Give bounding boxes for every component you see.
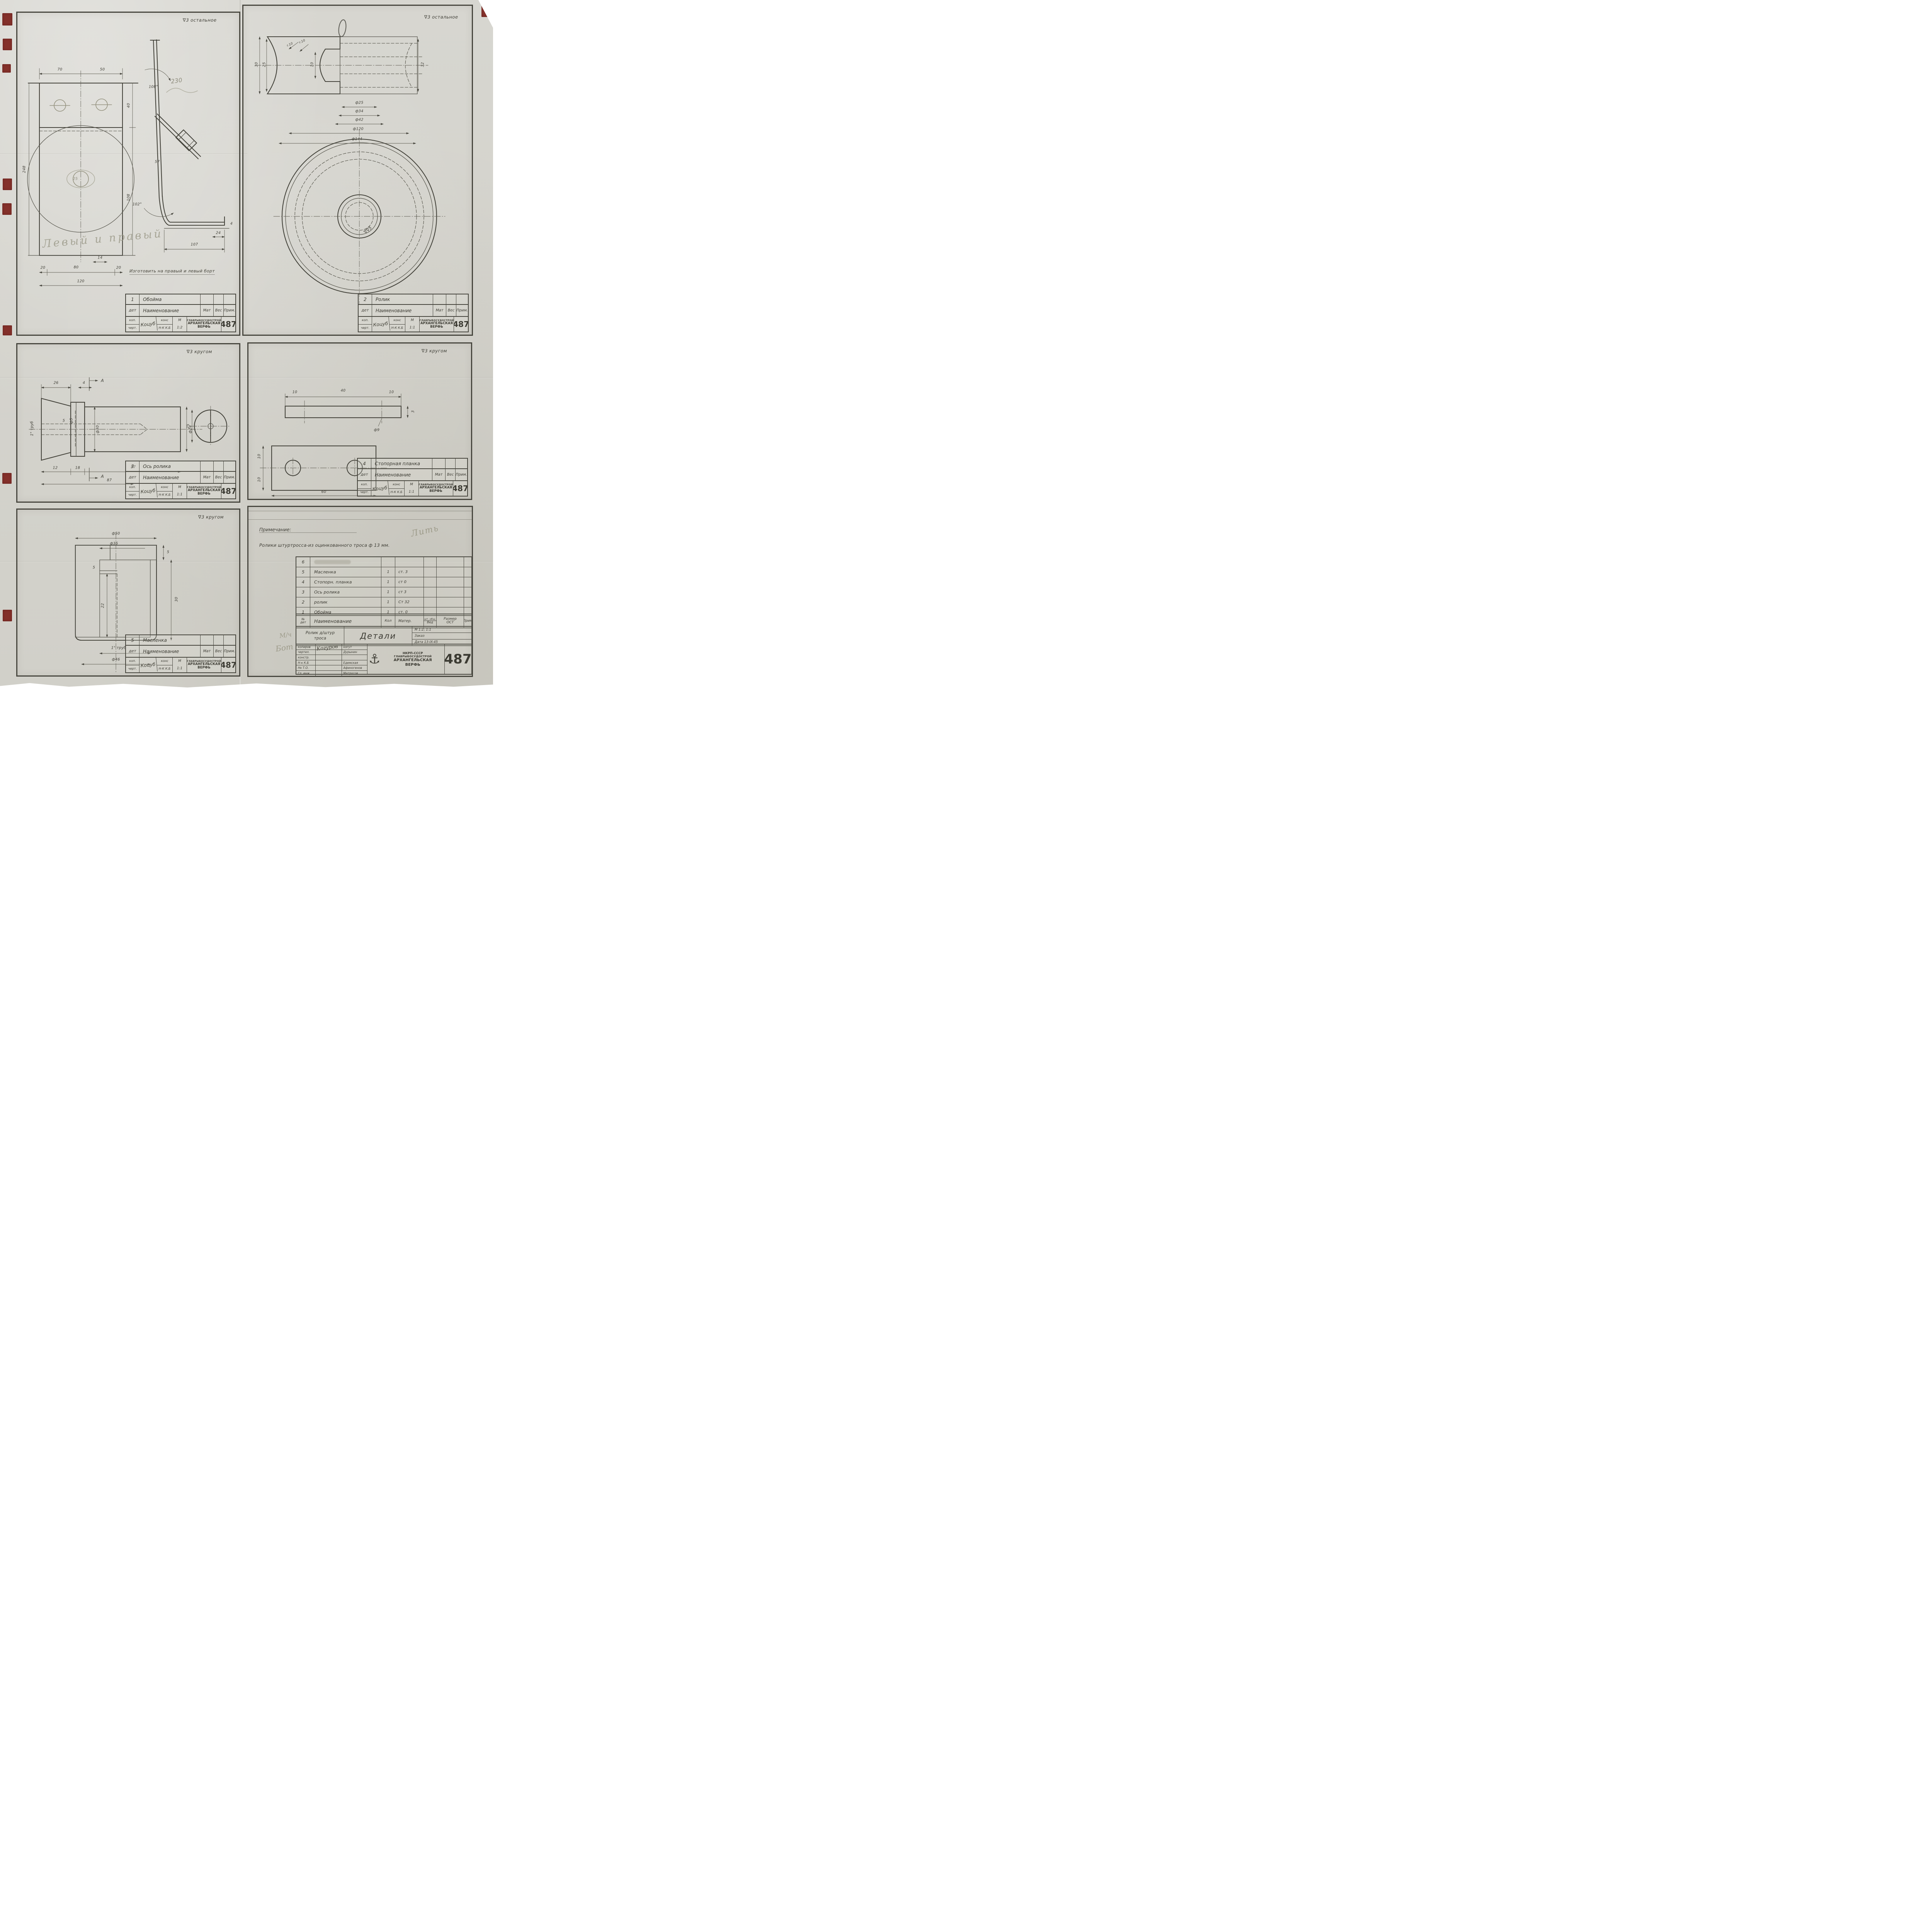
cell-empty — [224, 635, 235, 645]
row-qty: 1 — [381, 587, 395, 597]
yard-name-2: ВЕРФЬ — [197, 325, 210, 329]
header-name: Наименование — [310, 614, 381, 628]
obojma-front-view — [27, 68, 138, 286]
roles-cell: коп. черт. — [359, 317, 372, 332]
sign-role: Гл. инж. — [296, 671, 316, 676]
role-chert: черт. — [126, 665, 139, 673]
part-name: Стопорная планка — [371, 459, 432, 468]
cell-empty — [456, 294, 468, 304]
dim-label: 120 — [77, 279, 84, 284]
sign-signature — [316, 671, 342, 676]
red-tape-mark — [2, 13, 12, 26]
scale-cell: М 1:1 — [405, 317, 420, 332]
kons-cell: конс Н-К К.Б — [389, 481, 405, 496]
row-mat: Ст 32 — [395, 597, 424, 607]
row-qty — [381, 557, 395, 567]
kb: К.Б — [397, 491, 403, 494]
nk: Н-К — [391, 491, 396, 494]
dim-label: 248 — [22, 165, 27, 173]
sign-name: Матросов — [342, 671, 367, 676]
row-qty: 1 — [381, 567, 395, 577]
col-prim: Прим. — [456, 469, 467, 480]
col-det: дет — [126, 472, 139, 483]
roles-cell: коп. черт. — [126, 317, 139, 332]
row-name: Стопорн. планка — [310, 577, 381, 587]
scale-order-date: М 1:2; 1:1 Заказ Дата 13-IX-45 — [412, 627, 471, 645]
kb: К.Б — [165, 667, 171, 670]
col-mat: Мат — [201, 646, 214, 657]
col-mat: Мат — [201, 305, 214, 316]
row-mat: ст 3 — [395, 587, 424, 597]
kons: конс — [157, 317, 172, 325]
col-det: дет — [126, 646, 139, 657]
org-cell: ГЛАВРЫБОСУДОСТРОЙ АРХАНГЕЛЬСКАЯ ВЕРФЬ — [419, 481, 453, 496]
signature: Коцуб — [139, 483, 158, 499]
panel-obojma: ∇3 остальное 70 50 40 108 248 14 20 80 2… — [16, 12, 240, 336]
col-ves: Вес — [446, 469, 456, 480]
dim-label: 5 — [167, 550, 169, 554]
sign-name: Дурынин — [342, 650, 367, 655]
yard-name-2: ВЕРФЬ — [429, 490, 442, 493]
yard-name-2: ВЕРФЬ — [430, 325, 443, 329]
object-name-2: троса — [314, 636, 326, 641]
dim-label: 10 — [257, 477, 262, 482]
obojma-side-view — [144, 40, 229, 252]
header-size-2: ОСТ — [447, 621, 454, 624]
section-label: А — [101, 378, 104, 383]
org-text: НКРП-СССР ГЛАВРЫБОСУДОСТРОЙ АРХАНГЕЛЬСКА… — [381, 651, 444, 667]
dim-label: ф30 — [96, 425, 100, 433]
scale-m: М — [405, 481, 418, 488]
dim-label: 5 — [93, 566, 95, 570]
dim-label: 87 — [107, 478, 112, 483]
logo-org-cell: ⚓ НКРП-СССР ГЛАВРЫБОСУДОСТРОЙ АРХАНГЕЛЬС… — [367, 645, 445, 674]
scale-value: 1:1 — [173, 491, 187, 498]
row-ved — [424, 597, 437, 607]
cell-empty — [214, 461, 224, 471]
dim-label: ф120 — [353, 127, 363, 131]
parts-list-table: 6 5 Масленка 1 ст. 3 4 Стопорн. планка — [296, 556, 472, 616]
scale-value: 1:1 — [173, 665, 187, 672]
dim-label: 70 — [58, 68, 63, 72]
role-kop: коп. — [358, 481, 371, 489]
row-prim — [464, 587, 471, 597]
role-chert: черт. — [126, 325, 139, 332]
scale-m: М — [173, 484, 187, 491]
dim-label: 18 — [75, 466, 80, 470]
kons-cell: конс Н-К К.Б — [157, 317, 173, 332]
row-prim — [464, 597, 471, 607]
sign-signature — [316, 660, 342, 665]
dim-label: ф34 — [355, 109, 363, 114]
dim-label: 107 — [190, 243, 198, 247]
col-mat: Мат — [432, 469, 446, 480]
row-name: Масленка — [310, 567, 381, 577]
nk: Н-К — [159, 493, 165, 497]
dim-label: 3 — [411, 410, 415, 413]
torn-bottom-edge — [0, 682, 493, 689]
cell-empty — [224, 461, 235, 471]
nk-kb: Н-К К.Б — [157, 665, 172, 673]
dim-label: 20 — [116, 266, 121, 270]
header-no-2: дет — [300, 621, 306, 624]
sign-role: констр. — [296, 655, 316, 660]
sign-role: копиров — [296, 645, 316, 650]
part-name: Ролик — [372, 294, 433, 304]
signatures-block: копиров когут чертил. Дурынин констр. Н-… — [296, 644, 472, 675]
rule-line — [248, 519, 472, 520]
kons-cell: конс Н-К К.Б — [157, 484, 173, 498]
kons: конс — [389, 317, 405, 325]
col-ves: Вес — [214, 305, 224, 316]
surface-finish-note: ∇3 остальное — [183, 17, 217, 23]
dim-label: ф46 — [112, 658, 120, 662]
dim-label: 10 — [389, 390, 394, 395]
pencil-dim-label: 25 — [73, 177, 78, 181]
col-prim: Прим. — [224, 646, 235, 657]
dim-label: 40 — [127, 103, 131, 108]
panel-main-title-block: Примечание: Ролики штуртросса-из оцинков… — [247, 506, 473, 677]
title-block-4: 4 Стопорная планка дет Наименование Мат … — [357, 458, 468, 497]
scale-value: 1:1 — [405, 324, 419, 332]
role-kop: коп. — [126, 484, 139, 492]
dim-label: 25 — [262, 62, 267, 67]
role-chert: черт. — [126, 492, 139, 499]
roles-cell: коп. черт. — [126, 658, 139, 672]
title-block-3: 3 Ось ролика дет Наименование Мат Вес Пр… — [125, 461, 236, 499]
role-chert: черт. — [358, 489, 371, 496]
dim-label: ф42 — [355, 118, 363, 122]
parts-row: 4 Стопорн. планка 1 ст 0 — [296, 577, 471, 587]
title-block-5: 5 Масленка дет Наименование Мат Вес Прим… — [125, 634, 236, 673]
shipyard-logo-anchor-icon: ⚓ — [369, 651, 380, 667]
dim-label: 1" труб — [111, 646, 126, 650]
col-name: Наименование — [139, 472, 201, 483]
rule-line — [248, 511, 472, 511]
erased-entry — [314, 560, 351, 564]
kons: конс — [157, 658, 172, 665]
kb: К.Б — [165, 493, 171, 497]
row-ved — [424, 567, 437, 577]
col-prim: Прим. — [224, 305, 235, 316]
header-ved: шт. общ. Вед — [424, 614, 437, 628]
dim-label: 12 — [53, 466, 58, 470]
dim-label: ф9 — [374, 428, 380, 432]
panel-rolik: ∇3 остальное 30 25 r.10 r.10 10 32 ф25 ф… — [242, 5, 473, 336]
sheet-title: Детали — [344, 627, 412, 645]
dim-label: 14 — [98, 256, 103, 260]
part-number: 3 — [126, 461, 139, 471]
row-size — [437, 577, 464, 587]
cell-empty — [224, 294, 235, 304]
yard-name-1: АРХАНГЕЛЬСКАЯ — [381, 658, 444, 663]
cell-empty — [456, 459, 467, 468]
kb: К.Б — [398, 327, 403, 330]
header-no: № дет — [296, 614, 310, 628]
col-name: Наименование — [139, 305, 201, 316]
red-tape-mark — [3, 179, 12, 190]
col-ves: Вес — [446, 305, 456, 316]
red-tape-mark — [3, 325, 12, 335]
row-mat: ст 0 — [395, 577, 424, 587]
row-no: 3 — [296, 587, 310, 597]
drawing-number: 487 — [454, 317, 468, 332]
yard-name-2: ВЕРФЬ — [381, 663, 444, 667]
header-ved-label: Вед — [424, 621, 436, 624]
sign-role: чертил. — [296, 650, 316, 655]
cell-empty — [201, 461, 214, 471]
scale-m: М — [173, 658, 187, 665]
dim-label: 25 — [186, 424, 190, 429]
cell-empty — [446, 294, 456, 304]
parts-row: 5 Масленка 1 ст. 3 — [296, 567, 471, 577]
cell-empty — [446, 459, 456, 468]
row-prim — [464, 577, 471, 587]
dim-label: 80 — [74, 265, 79, 270]
sign-name — [342, 655, 367, 660]
col-name: Наименование — [372, 305, 433, 316]
row-qty: 1 — [381, 597, 395, 607]
kb: К.Б — [165, 327, 171, 330]
part-number: 5 — [126, 635, 139, 645]
cell-empty — [432, 459, 446, 468]
row-size — [437, 587, 464, 597]
cell-empty — [214, 635, 224, 645]
cell-empty — [201, 294, 214, 304]
dim-label: 4 — [83, 381, 85, 385]
scale-value: 1:2 — [173, 324, 187, 332]
col-name: Наименование — [371, 469, 432, 480]
org-cell: ГЛАВРЫБОСУДОСТРОЙ АРХАНГЕЛЬСКАЯ ВЕРФЬ — [187, 484, 221, 498]
nk: Н-К — [391, 327, 397, 330]
panel-os-rolika: ∇3 кругом 26 4 А А 1" труб 5 ф5 ф30 ф24 … — [16, 343, 240, 503]
roles-cell: коп. черт. — [358, 481, 371, 496]
col-det: дет — [126, 305, 139, 316]
dim-label: 10 — [257, 454, 262, 459]
kons: конс — [157, 484, 172, 492]
handwritten-pencil-margin: Бот — [275, 642, 294, 653]
surface-finish-note: ∇3 остальное — [424, 14, 458, 20]
org-cell: ГЛАВРЫБОСУДОСТРОЙ АРХАНГЕЛЬСКАЯ ВЕРФЬ — [420, 317, 454, 332]
col-name: Наименование — [139, 646, 201, 657]
col-det: дет — [358, 469, 371, 480]
row-ved — [424, 557, 437, 567]
panel-stopornaya-planka: ∇3 кругом 10 40 10 3 ф9 10 10 60 4 Стопо… — [247, 342, 472, 500]
part-name: Ось ролика — [139, 461, 201, 471]
red-tape-mark — [3, 39, 12, 50]
torn-corner — [478, 0, 493, 28]
dim-label: ф50 — [112, 532, 120, 536]
rolik-section-view — [255, 19, 428, 143]
sign-name: когут — [342, 645, 367, 650]
sign-signature — [316, 665, 342, 670]
scale-cell: М 1:1 — [173, 658, 187, 672]
handwritten-pencil-margin: М/ч — [279, 631, 292, 639]
section-label: А — [101, 474, 104, 479]
rolik-drawing — [243, 6, 472, 335]
row-name — [310, 557, 381, 567]
row-size — [437, 567, 464, 577]
dim-label: 5 — [63, 419, 65, 423]
part-name: Обойма — [139, 294, 201, 304]
dim-label: 4 — [230, 222, 233, 226]
dim-label: 30 — [255, 62, 259, 67]
sign-role: Нк Т.О. — [296, 665, 316, 670]
note-text: Ролики штуртросса-из оцинкованного троса… — [259, 543, 389, 548]
header-size: Размер ОСТ — [437, 614, 464, 628]
dim-label: ф25 — [355, 101, 363, 105]
sign-role: Н-к К.Б — [296, 660, 316, 665]
scale-m: М — [405, 317, 419, 324]
signature: Коцуб — [139, 316, 158, 332]
cell-empty — [433, 294, 446, 304]
dim-label: 108 — [127, 194, 131, 201]
nk-kb: Н-К К.Б — [157, 325, 172, 332]
part-number: 4 — [358, 459, 371, 468]
drawing-number-large: 487 — [444, 645, 471, 674]
plate-side-view — [285, 394, 408, 426]
nk-kb: Н-К К.Б — [157, 492, 172, 499]
object-name: Ролик д/штур троса — [296, 627, 344, 645]
cell-empty — [214, 294, 224, 304]
dim-label: 50 — [100, 68, 105, 72]
dim-label: 22 — [101, 603, 105, 608]
title-block-2: 2 Ролик дет Наименование Мат Вес Прим. к… — [358, 294, 469, 332]
scale-cell: М 1:1 — [405, 481, 419, 496]
org-cell: ГЛАВРЫБОСУДОСТРОЙ АРХАНГЕЛЬСКАЯ ВЕРФЬ — [187, 658, 221, 672]
red-tape-mark — [2, 203, 12, 215]
row-mat: ст. 3 — [395, 567, 424, 577]
row-name: Ось ролика — [310, 587, 381, 597]
header-prim: Прим — [464, 614, 471, 628]
org-name: ГЛАВРЫБОСУДОСТРОЙ — [381, 655, 444, 658]
header-qty: Кол — [381, 614, 395, 628]
scale-cell: М 1:1 — [173, 484, 187, 498]
row-prim — [464, 557, 471, 567]
drawing-number: 487 — [221, 484, 235, 498]
scale-m: М — [173, 317, 187, 324]
parts-row: 6 — [296, 557, 471, 567]
dim-label: 60 — [321, 490, 327, 494]
dim-label: 24 — [216, 231, 221, 235]
row-name: ролик — [310, 597, 381, 607]
dim-label: 32 — [421, 62, 425, 67]
surface-finish-note: ∇3 кругом — [422, 348, 447, 354]
signature: Коцуб — [371, 316, 390, 332]
part-name: Масленка — [139, 635, 201, 645]
dim-label: ф5 — [70, 418, 74, 424]
rolik-front-view — [274, 130, 445, 304]
dim-label: 102° — [133, 202, 142, 207]
role-kop: коп. — [126, 317, 139, 325]
red-tape-mark — [2, 473, 12, 484]
sign-name: Афиногенов — [342, 665, 367, 670]
drawing-number: 487 — [221, 317, 235, 332]
org-cell: ГЛАВРЫБОСУДОСТРОЙ АРХАНГЕЛЬСКАЯ ВЕРФЬ — [187, 317, 221, 332]
axle-section-view — [190, 406, 231, 446]
signatures-table: копиров когут чертил. Дурынин констр. Н-… — [296, 645, 367, 674]
object-name-1: Ролик д/штур — [306, 631, 335, 636]
agency-name: НКРП-СССР — [381, 651, 444, 655]
kons: конс — [389, 481, 404, 489]
dim-label: 30 — [175, 597, 179, 602]
sign-signature — [316, 655, 342, 660]
dim-label: 108° — [149, 85, 158, 89]
nk-kb: Н-К К.Б — [389, 489, 404, 496]
row-ved — [424, 577, 437, 587]
row-no: 6 — [296, 557, 310, 567]
title-block-1: 1 Обойма дет Наименование Мат Вес Прим. … — [125, 294, 236, 332]
part-number: 1 — [126, 294, 139, 304]
dim-label: 57 — [155, 160, 160, 164]
role-kop: коп. — [126, 658, 139, 665]
col-mat: Мат — [433, 305, 446, 316]
panel-maslenka: ∇3 кругом ф50 ф35 5 5 30 22 1" труб ф46 … — [16, 509, 240, 677]
row-mat — [395, 557, 424, 567]
col-ves: Вес — [214, 472, 224, 483]
col-mat: Мат — [201, 472, 214, 483]
part-number: 2 — [359, 294, 372, 304]
parts-row: 3 Ось ролика 1 ст 3 — [296, 587, 471, 597]
yard-name-2: ВЕРФЬ — [197, 492, 210, 496]
col-prim: Прим. — [224, 472, 235, 483]
dim-label: ф35 — [110, 542, 118, 546]
handwritten-pencil-note: Лить — [410, 524, 440, 539]
row-prim — [464, 567, 471, 577]
sheet-order: Заказ — [412, 633, 471, 639]
nk-kb: Н-К К.Б — [389, 325, 405, 332]
row-size — [437, 557, 464, 567]
red-tape-mark — [3, 610, 12, 621]
dim-label: 26 — [54, 381, 59, 385]
col-prim: Прим. — [456, 305, 468, 316]
kons-cell: конс Н-К К.Б — [389, 317, 405, 332]
obojma-drawing — [17, 13, 239, 335]
nk: Н-К — [159, 327, 165, 330]
row-size — [437, 597, 464, 607]
row-ved — [424, 587, 437, 597]
role-kop: коп. — [359, 317, 372, 325]
col-det: дет — [359, 305, 372, 316]
dim-label: 20 — [41, 266, 46, 270]
surface-finish-note: ∇3 кругом — [198, 514, 224, 520]
dim-label: 10 — [310, 62, 315, 67]
blueprint-sheet: ∇3 остальное 70 50 40 108 248 14 20 80 2… — [0, 0, 493, 689]
drawing-number: 487 — [453, 481, 467, 496]
nk: Н-К — [159, 667, 165, 670]
dim-label: 1" труб — [30, 421, 34, 436]
note-label: Примечание: — [259, 527, 357, 533]
col-ves: Вес — [214, 646, 224, 657]
title-band: Ролик д/штур троса Детали М 1:2; 1:1 Зак… — [296, 626, 472, 646]
row-no: 4 — [296, 577, 310, 587]
cell-empty — [201, 635, 214, 645]
row-qty: 1 — [381, 577, 395, 587]
sign-name: Едемская — [342, 660, 367, 665]
scale-value: 1:1 — [405, 488, 418, 496]
roles-cell: коп. черт. — [126, 484, 139, 498]
sheet-scale: М 1:2; 1:1 — [412, 627, 471, 633]
header-mat: Матер. — [395, 614, 424, 628]
red-tape-mark — [2, 64, 11, 73]
signature: Коцуб — [371, 480, 389, 497]
scale-cell: М 1:2 — [173, 317, 187, 332]
kons-cell: конс Н-К К.Б — [157, 658, 173, 672]
drawing-number: 487 — [221, 658, 235, 672]
signature: Коцуб — [139, 657, 158, 673]
dim-label: ф144 — [352, 137, 362, 141]
yard-name-2: ВЕРФЬ — [197, 666, 210, 670]
